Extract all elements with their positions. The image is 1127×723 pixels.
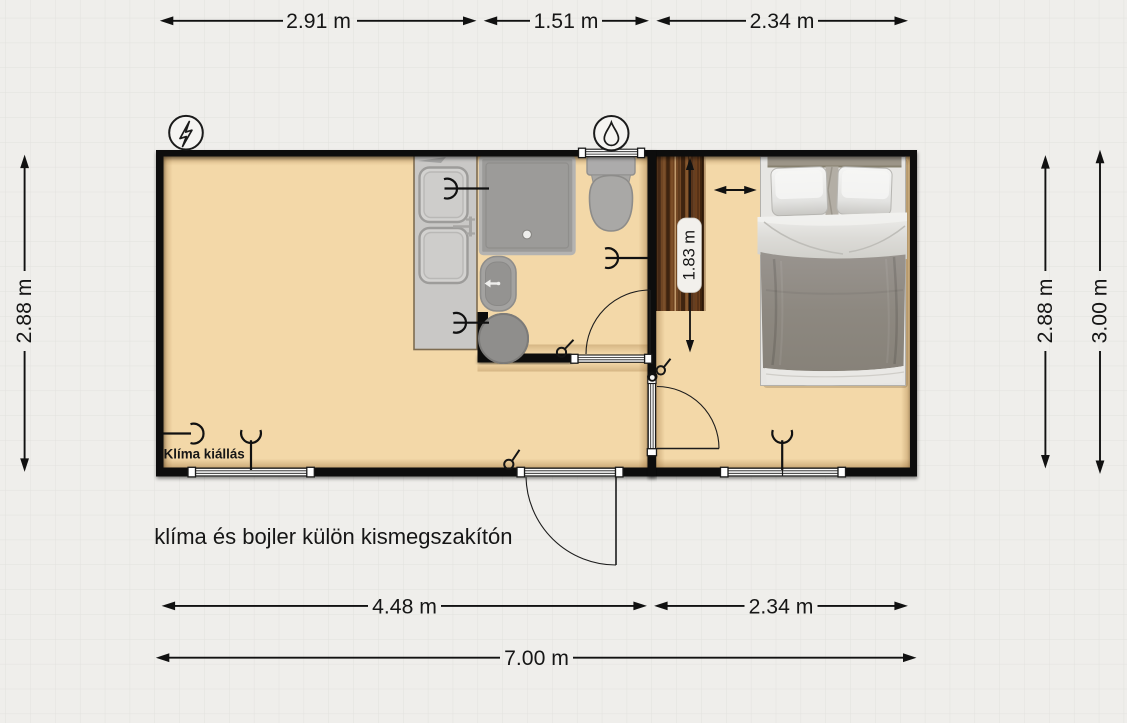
svg-text:Klíma kiállás: Klíma kiállás [164,446,245,461]
svg-text:1.83 m: 1.83 m [680,230,698,280]
svg-text:3.00 m: 3.00 m [1089,279,1112,344]
svg-text:2.34 m: 2.34 m [750,10,815,33]
svg-text:2.88 m: 2.88 m [13,279,36,344]
svg-text:7.00 m: 7.00 m [504,647,569,670]
svg-text:2.88 m: 2.88 m [1034,279,1057,344]
svg-text:2.34 m: 2.34 m [749,595,814,618]
svg-text:4.48 m: 4.48 m [372,595,437,618]
svg-text:1.51 m: 1.51 m [534,10,599,33]
svg-text:klíma és bojler külön kismegsz: klíma és bojler külön kismegszakítón [154,524,512,549]
svg-text:2.91 m: 2.91 m [286,10,351,33]
